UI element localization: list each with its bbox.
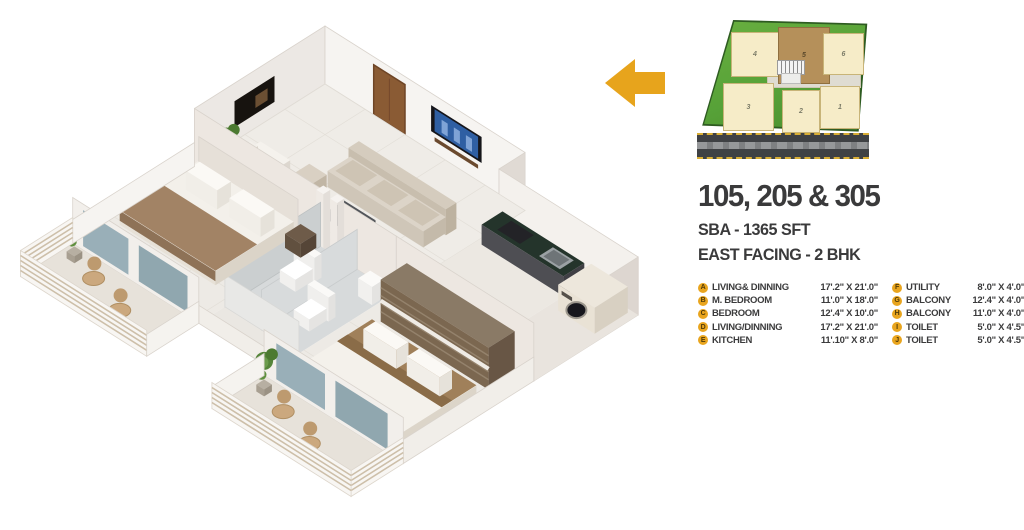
legend-room-dimension: 5'.0" X 4'.5"	[977, 335, 1024, 346]
left-arrow-icon	[603, 57, 667, 109]
unit-sba: SBA - 1365 SFT	[698, 220, 879, 240]
site-plan-road	[697, 133, 869, 159]
legend-room-label: TOILET	[906, 335, 977, 346]
legend-room-dimension: 5'.0" X 4'.5"	[977, 322, 1024, 333]
site-plan-entry	[781, 73, 801, 84]
site-plan-unit-number: 4	[753, 51, 757, 58]
legend-key-badge: C	[698, 309, 708, 319]
legend-column-2: FUTILITY8'.0" X 4'.0"GBALCONY12'.4" X 4'…	[892, 281, 1024, 347]
legend-room-dimension: 17'.2" X 21'.0"	[820, 282, 878, 293]
site-plan-unit: 4	[731, 32, 779, 77]
site-plan-unit: 6	[823, 33, 864, 75]
legend-key-badge: D	[698, 322, 708, 332]
legend-room-dimension: 12'.4" X 4'.0"	[972, 295, 1024, 306]
brochure-page: { "panel": { "title": "105, 205 & 305", …	[0, 0, 1024, 530]
room-legend: ALIVING& DINNING17'.2" X 21'.0"BM. BEDRO…	[698, 281, 1024, 347]
legend-room-dimension: 12'.4" X 10'.0"	[820, 308, 878, 319]
legend-row: BM. BEDROOM11'.0" X 18'.0"	[698, 294, 878, 307]
site-plan-unit-number: 5	[802, 52, 806, 59]
site-plan-unit-number: 2	[799, 108, 803, 115]
legend-row: JTOILET5'.0" X 4'.5"	[892, 334, 1024, 347]
site-plan-unit: 1	[820, 86, 860, 129]
legend-room-dimension: 11'.0" X 4'.0"	[973, 308, 1024, 319]
legend-column-1: ALIVING& DINNING17'.2" X 21'.0"BM. BEDRO…	[698, 281, 878, 347]
legend-room-label: LIVING& DINNING	[712, 282, 820, 293]
road-center-line	[697, 142, 869, 149]
legend-row: GBALCONY12'.4" X 4'.0"	[892, 294, 1024, 307]
legend-key-badge: E	[698, 335, 708, 345]
legend-row: ITOILET5'.0" X 4'.5"	[892, 321, 1024, 334]
unit-title: 105, 205 & 305	[698, 178, 879, 214]
site-plan-unit-number: 6	[842, 51, 846, 58]
legend-room-dimension: 8'.0" X 4'.0"	[977, 282, 1024, 293]
legend-key-badge: F	[892, 283, 902, 293]
legend-key-badge: I	[892, 322, 902, 332]
site-plan-unit-number: 1	[838, 104, 842, 111]
legend-room-label: BEDROOM	[712, 308, 820, 319]
floor-plan-3d-rendering	[0, 0, 680, 530]
legend-room-dimension: 17'.2" X 21'.0"	[820, 322, 878, 333]
legend-room-label: UTILITY	[906, 282, 977, 293]
unit-info-panel: 105, 205 & 305 SBA - 1365 SFT EAST FACIN…	[698, 178, 889, 265]
legend-key-badge: J	[892, 335, 902, 345]
site-plan-unit: 2	[782, 90, 820, 133]
legend-room-label: KITCHEN	[712, 335, 821, 346]
legend-room-label: LIVING/DINNING	[712, 322, 820, 333]
site-plan-thumbnail: 456321	[697, 14, 875, 160]
legend-key-badge: A	[698, 283, 708, 293]
legend-room-label: TOILET	[906, 322, 977, 333]
legend-key-badge: B	[698, 296, 708, 306]
legend-room-label: BALCONY	[906, 308, 973, 319]
site-plan-unit: 3	[723, 83, 774, 131]
legend-row: EKITCHEN11'.10" X 8'.0"	[698, 334, 878, 347]
legend-room-dimension: 11'.10" X 8'.0"	[821, 335, 878, 346]
legend-row: FUTILITY8'.0" X 4'.0"	[892, 281, 1024, 294]
legend-row: DLIVING/DINNING17'.2" X 21'.0"	[698, 321, 878, 334]
legend-room-dimension: 11'.0" X 18'.0"	[821, 295, 878, 306]
legend-room-label: BALCONY	[906, 295, 972, 306]
legend-row: HBALCONY11'.0" X 4'.0"	[892, 307, 1024, 320]
legend-row: CBEDROOM12'.4" X 10'.0"	[698, 307, 878, 320]
legend-room-label: M. BEDROOM	[712, 295, 821, 306]
site-plan-unit-number: 3	[747, 104, 751, 111]
legend-key-badge: G	[892, 296, 902, 306]
legend-key-badge: H	[892, 309, 902, 319]
unit-facing: EAST FACING - 2 BHK	[698, 245, 879, 265]
legend-row: ALIVING& DINNING17'.2" X 21'.0"	[698, 281, 878, 294]
